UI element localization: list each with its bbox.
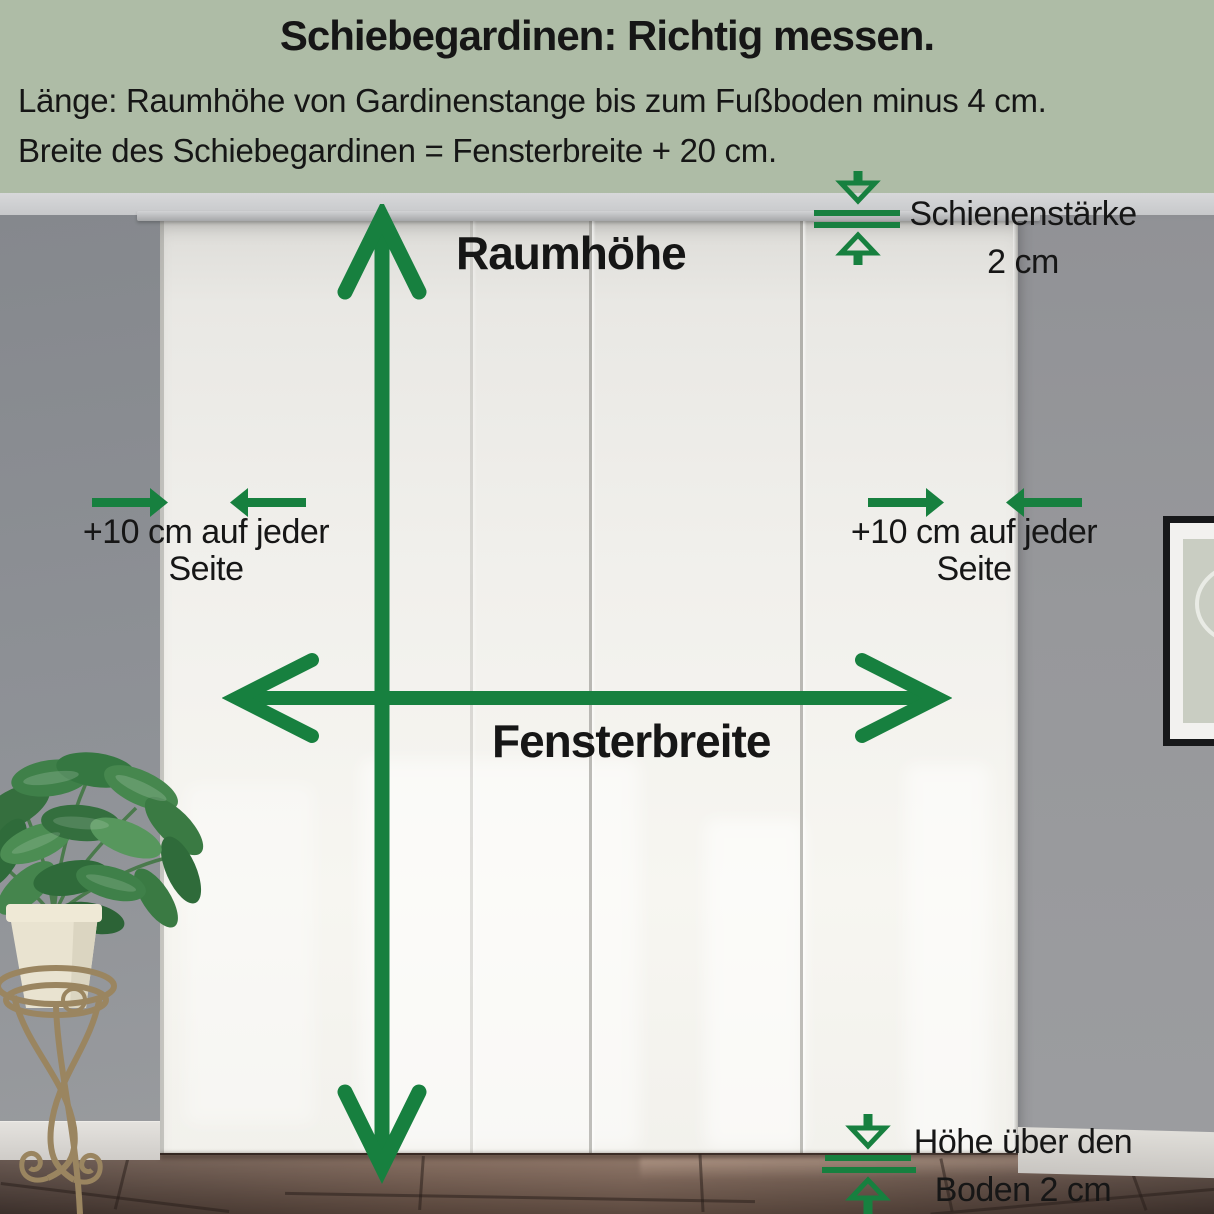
potted-plant [0,746,206,1214]
room-height-label: Raumhöhe [456,226,686,280]
header-banner: Schiebegardinen: Richtig messen. Länge: … [0,0,1214,193]
rail-thickness-label: Schienenstärke 2 cm [898,194,1148,282]
instruction-width: Breite des Schiebegardinen = Fensterbrei… [18,132,777,170]
wall-picture-frame [1163,516,1214,746]
infographic-page: Schiebegardinen: Richtig messen. Länge: … [0,0,1214,1214]
floor-clearance-label: Höhe über den Boden 2 cm [896,1122,1150,1210]
down-arrow-icon [841,171,875,201]
up-arrow-icon [841,235,875,265]
instruction-length: Länge: Raumhöhe von Gardinenstange bis z… [18,82,1047,120]
side-allowance-label-left: +10 cm auf jeder Seite [72,514,340,588]
rail-top-line [814,210,900,216]
plant-stand [0,968,114,1214]
curtain-light-reflection [705,819,805,1149]
curtain-right-edge [1013,219,1018,1155]
window-width-label: Fensterbreite [492,714,770,768]
rail-bottom-line [814,222,900,228]
rail-thickness-marker [810,168,910,268]
curtain-light-reflection [905,764,990,1149]
circle-artwork-shape [1195,563,1214,645]
down-arrow-icon [851,1114,885,1146]
page-title: Schiebegardinen: Richtig messen. [0,12,1214,60]
picture-artwork [1183,539,1214,723]
side-allowance-label-right: +10 cm auf jeder Seite [840,514,1108,588]
up-arrow-icon [851,1180,885,1214]
